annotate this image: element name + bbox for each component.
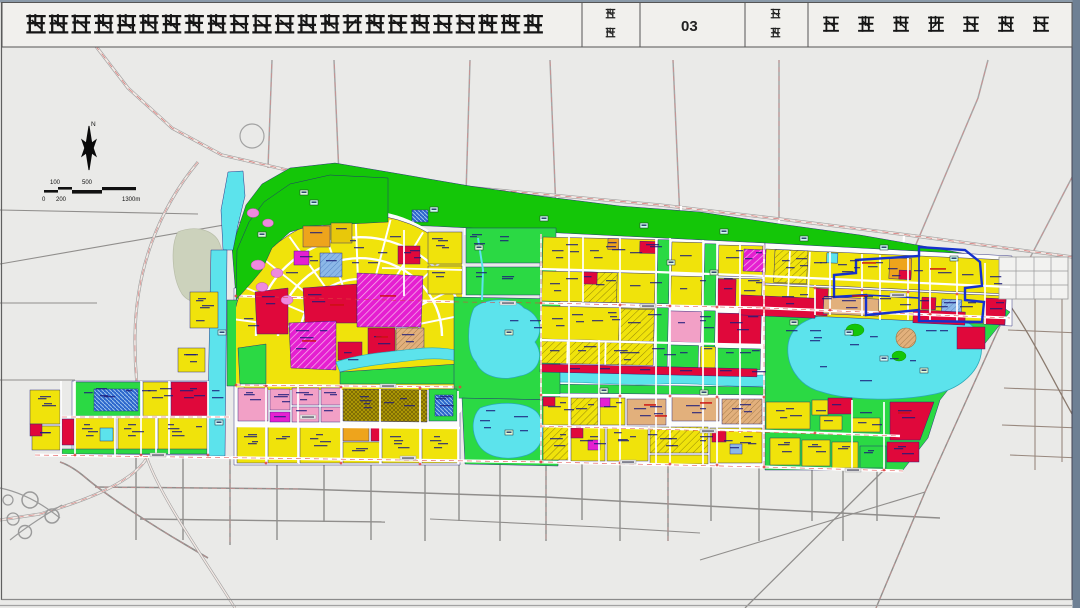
svg-text:03: 03: [681, 18, 698, 35]
svg-text:200: 200: [56, 197, 67, 203]
svg-text:1300m: 1300m: [122, 197, 140, 203]
svg-text:100: 100: [50, 180, 61, 186]
svg-text:N: N: [91, 121, 96, 128]
svg-text:500: 500: [82, 180, 93, 186]
